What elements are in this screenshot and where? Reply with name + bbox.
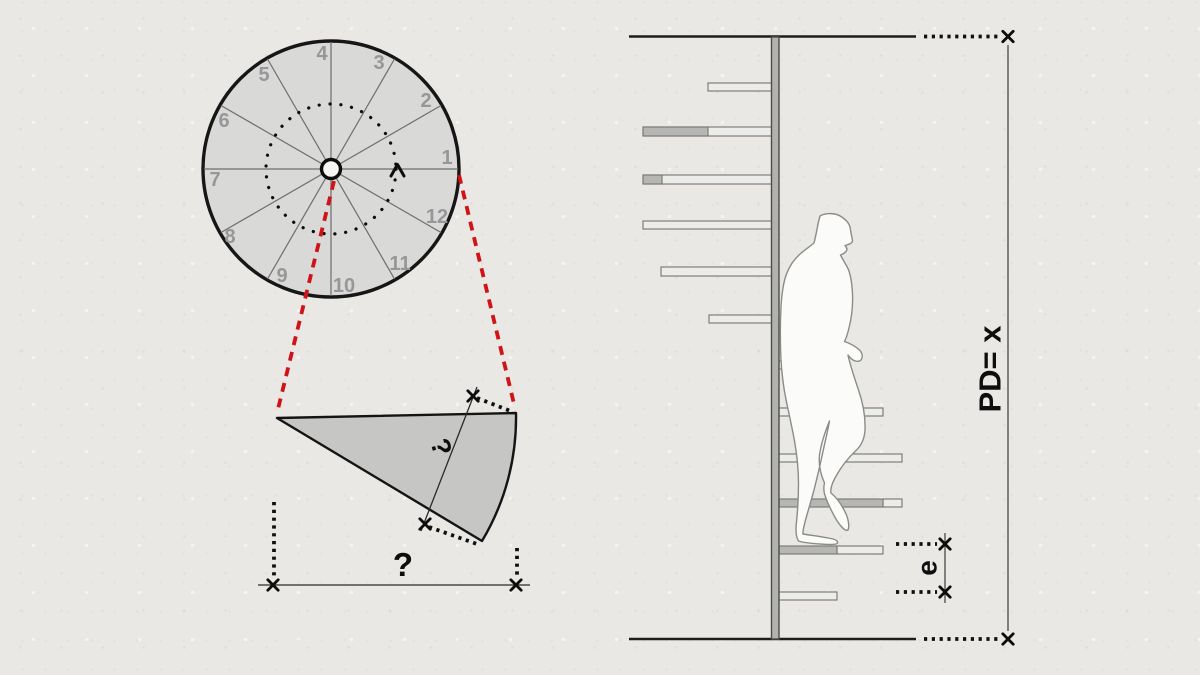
riser-height-label: e	[912, 560, 943, 576]
tread	[709, 315, 773, 323]
riser-dimension: e	[896, 533, 950, 603]
tread-wedge	[277, 413, 516, 541]
sector-number: 3	[373, 52, 384, 74]
sector-number: 12	[426, 206, 448, 228]
projection-line-right	[459, 175, 515, 408]
tread	[643, 221, 773, 229]
tread-width-label: ?	[393, 546, 413, 583]
x-marker	[1003, 634, 1013, 644]
center-column-circle	[322, 160, 341, 179]
x-marker	[468, 391, 478, 401]
tread	[708, 83, 773, 91]
sector-number: 9	[276, 265, 287, 287]
dotted-extension-line	[477, 398, 513, 412]
plan-view: 1 2 3 4 5 6 7 8 9 10 11 12	[203, 41, 515, 409]
sector-number: 1	[441, 147, 452, 169]
tread	[837, 546, 883, 554]
tread-highlight	[643, 127, 708, 136]
sector-number: 7	[209, 169, 220, 191]
center-pole	[772, 37, 780, 639]
person-silhouette	[780, 214, 865, 545]
total-rise-label: PD= x	[973, 325, 1008, 413]
sector-number: 4	[316, 43, 328, 65]
tread	[661, 267, 773, 276]
tread	[883, 499, 902, 507]
treads-left	[643, 83, 773, 323]
sector-number: 11	[389, 253, 410, 275]
sector-number: 5	[258, 64, 269, 86]
total-rise-dimension: PD= x	[924, 31, 1013, 644]
tread-detail: ? ?	[258, 387, 530, 590]
tread	[779, 592, 837, 600]
sector-number: 8	[224, 226, 235, 248]
section-view: PD= x e	[629, 31, 1013, 644]
spiral-stair-diagram: 1 2 3 4 5 6 7 8 9 10 11 12 ?	[0, 0, 1200, 675]
tread-highlight	[643, 175, 662, 184]
sector-number: 2	[420, 90, 431, 112]
x-marker	[1003, 31, 1013, 41]
sector-number: 6	[218, 110, 229, 132]
diagram-stage: 1 2 3 4 5 6 7 8 9 10 11 12 ?	[0, 0, 1200, 675]
tread-highlight	[779, 546, 837, 554]
sector-number: 10	[333, 275, 355, 297]
